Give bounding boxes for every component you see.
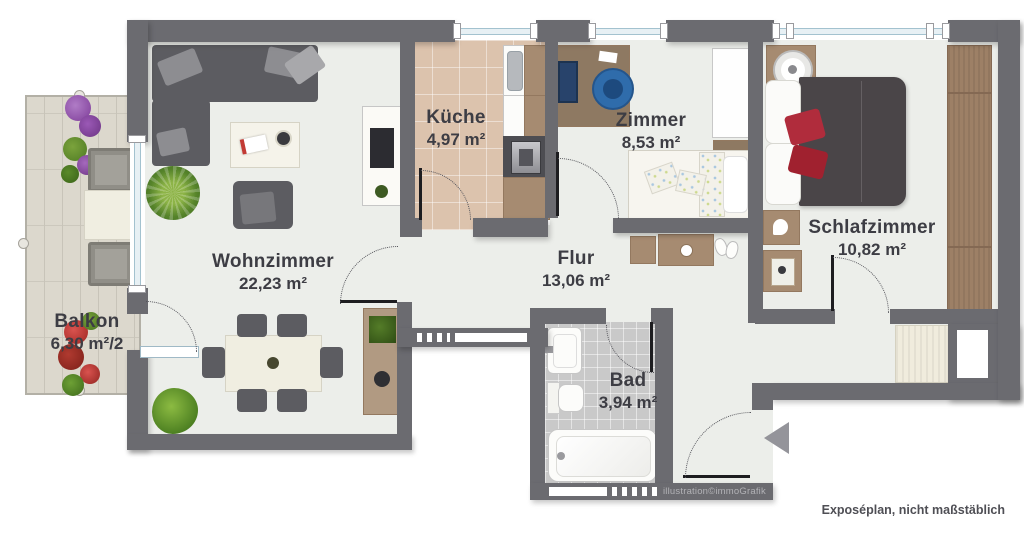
room-label-schlafzimmer: Schlafzimmer 10,82 m² xyxy=(808,218,935,258)
hall-bench xyxy=(630,236,656,264)
room-name: Balkon xyxy=(51,312,124,331)
wall-left xyxy=(127,20,148,142)
wall-slot xyxy=(549,487,607,496)
wall-slot xyxy=(455,333,527,342)
dining-chair xyxy=(237,389,267,412)
room-area: 3,94 m² xyxy=(599,394,658,411)
stove xyxy=(503,136,548,177)
armchair xyxy=(233,181,293,229)
oven xyxy=(511,141,541,174)
dining-chair xyxy=(237,314,267,337)
bedroom-dresser xyxy=(763,250,802,292)
bathroom-sink xyxy=(547,327,582,374)
bathtub xyxy=(548,429,657,482)
hall-wardrobe xyxy=(895,325,949,383)
room-label-wohnzimmer: Wohnzimmer 22,23 m² xyxy=(212,252,334,292)
tv-sideboard xyxy=(362,106,402,206)
room-area: 6,30 m²/2 xyxy=(51,335,124,352)
room-name: Zimmer xyxy=(616,111,686,130)
window-kitchen xyxy=(455,22,536,40)
wall-kitchen-west xyxy=(400,42,415,220)
wall-right xyxy=(998,20,1020,400)
balcony-chair xyxy=(88,148,134,192)
watermark: illustration©immoGrafik xyxy=(663,486,766,497)
single-bed xyxy=(628,150,750,219)
balcony-chair xyxy=(88,242,134,286)
room-label-bad: Bad 3,94 m² xyxy=(599,371,658,411)
wall-top xyxy=(536,20,590,42)
dining-chair xyxy=(277,314,307,337)
shoes xyxy=(714,236,738,262)
laptop xyxy=(558,61,578,103)
wall-hall-south xyxy=(397,328,548,347)
room-name: Flur xyxy=(542,249,610,268)
room-name: Wohnzimmer xyxy=(212,252,334,271)
window-balcony-door xyxy=(130,138,145,290)
bowl xyxy=(277,132,290,145)
cushion-patterned xyxy=(675,169,707,196)
wall-bottom-living xyxy=(127,434,412,450)
wall-bedroom-west xyxy=(748,42,763,323)
plant-pot xyxy=(369,316,396,343)
railing-knob xyxy=(18,238,29,249)
room-area: 13,06 m² xyxy=(542,272,610,289)
entrance-arrow-icon xyxy=(764,422,789,454)
room-name: Küche xyxy=(426,108,486,127)
dining-table xyxy=(225,335,322,392)
dining-chair xyxy=(202,347,225,378)
dining-chair xyxy=(277,389,307,412)
wall-entry-stub xyxy=(752,383,773,410)
sink xyxy=(507,51,523,91)
wall-top xyxy=(666,20,774,42)
plant-pot xyxy=(374,371,390,387)
potted-plant xyxy=(146,166,200,220)
balcony-table xyxy=(84,190,132,240)
wall-bedroom-south xyxy=(890,309,1000,324)
double-bed-duvet xyxy=(799,77,906,206)
room-label-balkon: Balkon 6,30 m²/2 xyxy=(51,312,124,352)
magazine xyxy=(240,134,269,154)
wall-bath-north xyxy=(530,308,606,324)
room-area: 8,53 m² xyxy=(616,134,686,151)
wall-bath-west xyxy=(530,308,545,500)
wall-top xyxy=(127,20,455,42)
wall-hatch xyxy=(417,333,450,342)
wall-kitchen-south xyxy=(400,218,422,237)
toilet xyxy=(558,384,584,412)
room-label-kueche: Küche 4,97 m² xyxy=(426,108,486,148)
window-childroom xyxy=(590,22,666,40)
wall-bottom-right xyxy=(770,383,1020,400)
hall-dresser xyxy=(658,234,714,266)
kitchen-cabinet xyxy=(503,177,550,220)
office-chair xyxy=(592,68,634,110)
tv xyxy=(370,128,394,168)
faucet xyxy=(557,452,565,460)
wall-hatch xyxy=(612,487,660,496)
paper xyxy=(598,51,617,63)
dining-chair xyxy=(320,347,343,378)
room-area: 22,23 m² xyxy=(212,275,334,292)
room-area: 10,82 m² xyxy=(808,241,935,258)
coffee-table xyxy=(230,122,300,168)
room-name: Bad xyxy=(599,371,658,390)
window-bedroom xyxy=(774,22,948,40)
kitchen-sink-counter xyxy=(503,45,526,97)
wardrobe-white xyxy=(712,48,750,138)
pillow xyxy=(723,156,748,213)
room-label-zimmer: Zimmer 8,53 m² xyxy=(616,111,686,151)
wardrobe xyxy=(947,45,992,315)
floorplan: Balkon 6,30 m²/2 Wohnzimmer 22,23 m² Küc… xyxy=(0,0,1024,538)
room-name: Schlafzimmer xyxy=(808,218,935,237)
faucet xyxy=(544,346,553,353)
room-area: 4,97 m² xyxy=(426,131,486,148)
wall-bedroom-south xyxy=(755,309,835,324)
wall-kitchen-south xyxy=(473,218,548,237)
wall-childroom-south xyxy=(613,218,748,233)
plant-pot xyxy=(375,185,388,198)
centerpiece xyxy=(267,357,279,369)
disclaimer: Exposéplan, nicht maßstäblich xyxy=(822,503,1005,517)
nightstand xyxy=(763,210,800,245)
kitchen-counter xyxy=(503,95,526,138)
wall-living-hall xyxy=(397,302,412,442)
room-label-flur: Flur 13,06 m² xyxy=(542,249,610,289)
wall-shaft xyxy=(957,330,988,378)
